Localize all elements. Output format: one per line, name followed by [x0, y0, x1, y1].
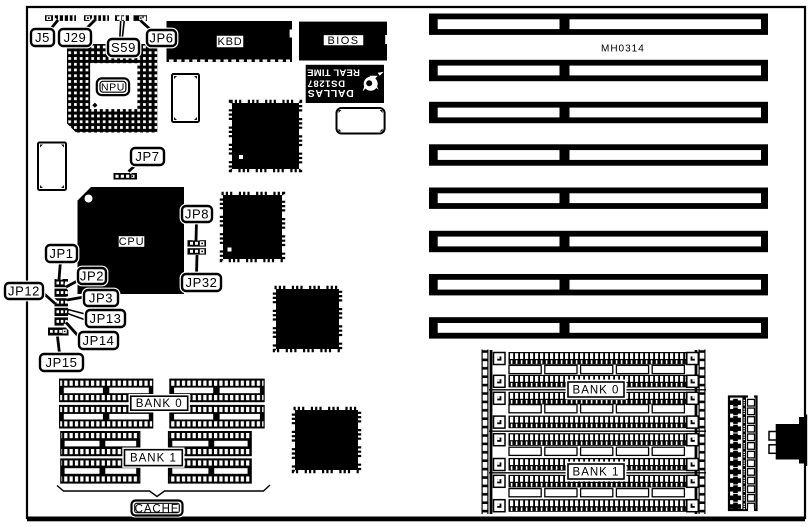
svg-text:REAL TIME: REAL TIME: [307, 67, 360, 78]
svg-text:NPU: NPU: [101, 82, 125, 94]
svg-text:JP15: JP15: [45, 355, 77, 370]
svg-text:BANK 0: BANK 0: [136, 398, 183, 410]
svg-text:JP14: JP14: [82, 333, 114, 348]
svg-text:MH0314: MH0314: [601, 44, 645, 55]
svg-text:DS1287: DS1287: [307, 77, 345, 88]
svg-text:J5: J5: [35, 30, 50, 45]
svg-text:BANK 1: BANK 1: [130, 453, 177, 465]
svg-text:JP8: JP8: [185, 206, 209, 221]
svg-text:JP2: JP2: [80, 268, 104, 283]
svg-text:S59: S59: [111, 40, 136, 55]
svg-text:DALLAS: DALLAS: [307, 87, 354, 99]
svg-text:BANK 0: BANK 0: [573, 384, 620, 396]
svg-text:JP7: JP7: [135, 149, 159, 164]
svg-text:KBD: KBD: [217, 36, 242, 48]
svg-text:CPU: CPU: [119, 236, 145, 248]
svg-text:J29: J29: [64, 30, 87, 45]
svg-text:JP13: JP13: [89, 311, 121, 326]
svg-text:BANK 1: BANK 1: [573, 466, 620, 478]
svg-text:BIOS: BIOS: [328, 35, 360, 47]
svg-text:JP1: JP1: [49, 246, 73, 261]
svg-text:JP32: JP32: [185, 275, 217, 290]
svg-text:JP12: JP12: [8, 283, 40, 298]
svg-text:JP3: JP3: [89, 290, 113, 305]
svg-text:CACHE: CACHE: [135, 504, 180, 516]
svg-text:JP6: JP6: [149, 30, 173, 45]
